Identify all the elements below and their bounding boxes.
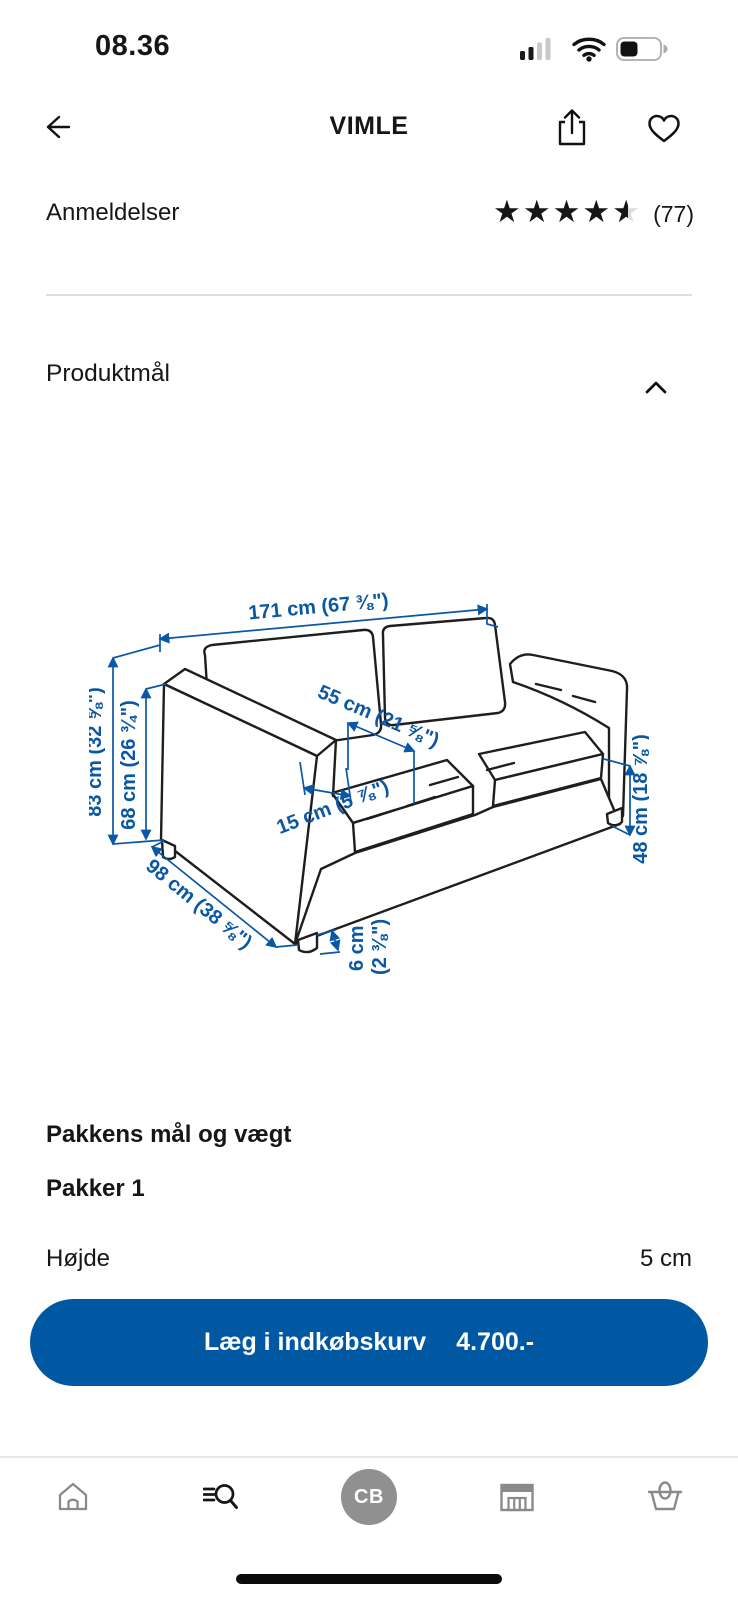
dim-label-arm-height: 68 cm (26 ¾"): [118, 700, 140, 830]
add-to-cart-price: 4.700.-: [456, 1328, 534, 1357]
reviews-count: (77): [653, 201, 694, 228]
nav-search[interactable]: [203, 1479, 239, 1515]
nav-profile-avatar[interactable]: CB: [341, 1469, 397, 1525]
wifi-icon: [571, 36, 607, 62]
nav-home[interactable]: [55, 1479, 91, 1515]
store-icon: [499, 1480, 535, 1514]
sofa-drawing: [161, 618, 627, 952]
battery-icon: [616, 37, 670, 61]
chevron-up-icon[interactable]: [644, 378, 668, 396]
add-to-cart-button[interactable]: Læg i indkøbskurv 4.700.-: [30, 1299, 708, 1386]
package-group: Pakker 1: [46, 1175, 145, 1203]
dim-label-seat-height: 48 cm (18 ⅞"): [630, 734, 649, 864]
rating-stars: ★★★★★★: [493, 196, 642, 227]
half-star-icon: ★★: [612, 196, 642, 227]
avatar-initials: CB: [354, 1486, 384, 1509]
add-to-cart-label: Læg i indkøbskurv: [204, 1328, 426, 1357]
package-row-value: 5 cm: [640, 1245, 692, 1273]
page-title: VIMLE: [0, 112, 738, 141]
star-icon: ★: [553, 194, 583, 229]
star-icon: ★: [523, 194, 553, 229]
favorite-heart-icon[interactable]: [646, 112, 682, 144]
nav-store[interactable]: [499, 1479, 535, 1515]
home-indicator[interactable]: [236, 1574, 502, 1584]
search-browse-icon: [203, 1481, 239, 1513]
dim-label-leg-height-in: (2 ⅜"): [369, 919, 391, 975]
sofa-dimensions-diagram: 171 cm (67 ⅜") 83 cm (32 ⅝") 68 cm (26 ¾…: [89, 556, 649, 976]
package-row-label: Højde: [46, 1245, 110, 1273]
nav-cart[interactable]: [647, 1479, 683, 1515]
section-title-product-dimensions[interactable]: Produktmål: [46, 360, 170, 388]
divider: [46, 294, 692, 296]
share-icon[interactable]: [551, 106, 593, 150]
dim-label-leg-height-cm: 6 cm: [346, 925, 368, 971]
dim-label-total-height: 83 cm (32 ⅝"): [89, 687, 106, 817]
package-heading: Pakkens mål og vægt: [46, 1121, 291, 1149]
basket-icon: [647, 1481, 683, 1513]
bottom-nav-divider: [0, 1456, 738, 1458]
signal-icon: [520, 38, 552, 60]
app-screen: 08.36 VIMLE Anmeldelser ★★★★★★ (77) Prod…: [0, 0, 738, 1600]
star-icon: ★: [582, 194, 612, 229]
star-icon: ★: [493, 194, 523, 229]
home-icon: [56, 1480, 90, 1514]
reviews-label[interactable]: Anmeldelser: [46, 199, 179, 227]
status-time: 08.36: [95, 30, 170, 63]
